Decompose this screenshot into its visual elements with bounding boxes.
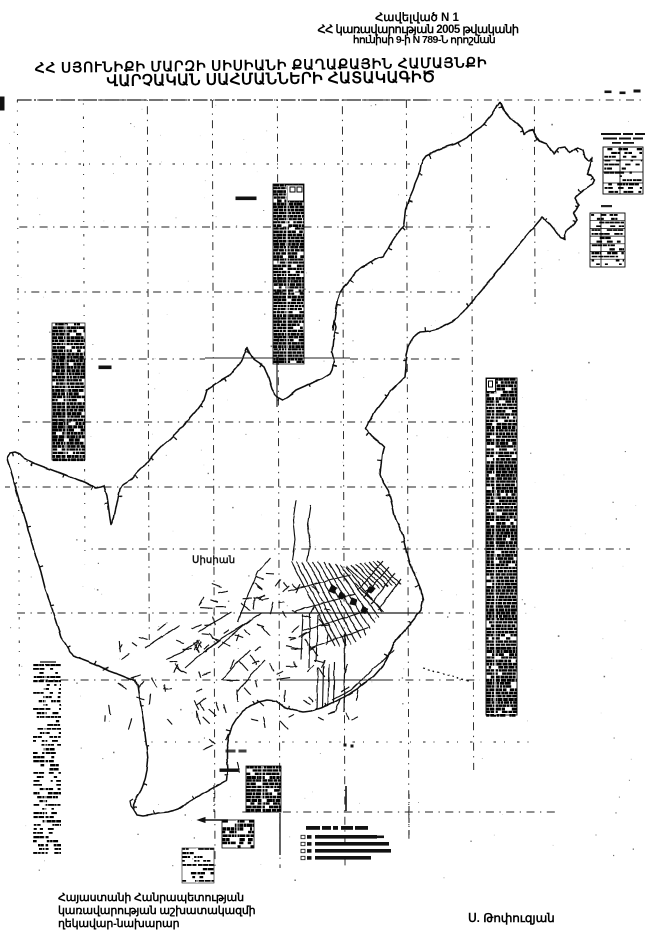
svg-text:Սիսիան: Սիսիան: [192, 555, 235, 566]
